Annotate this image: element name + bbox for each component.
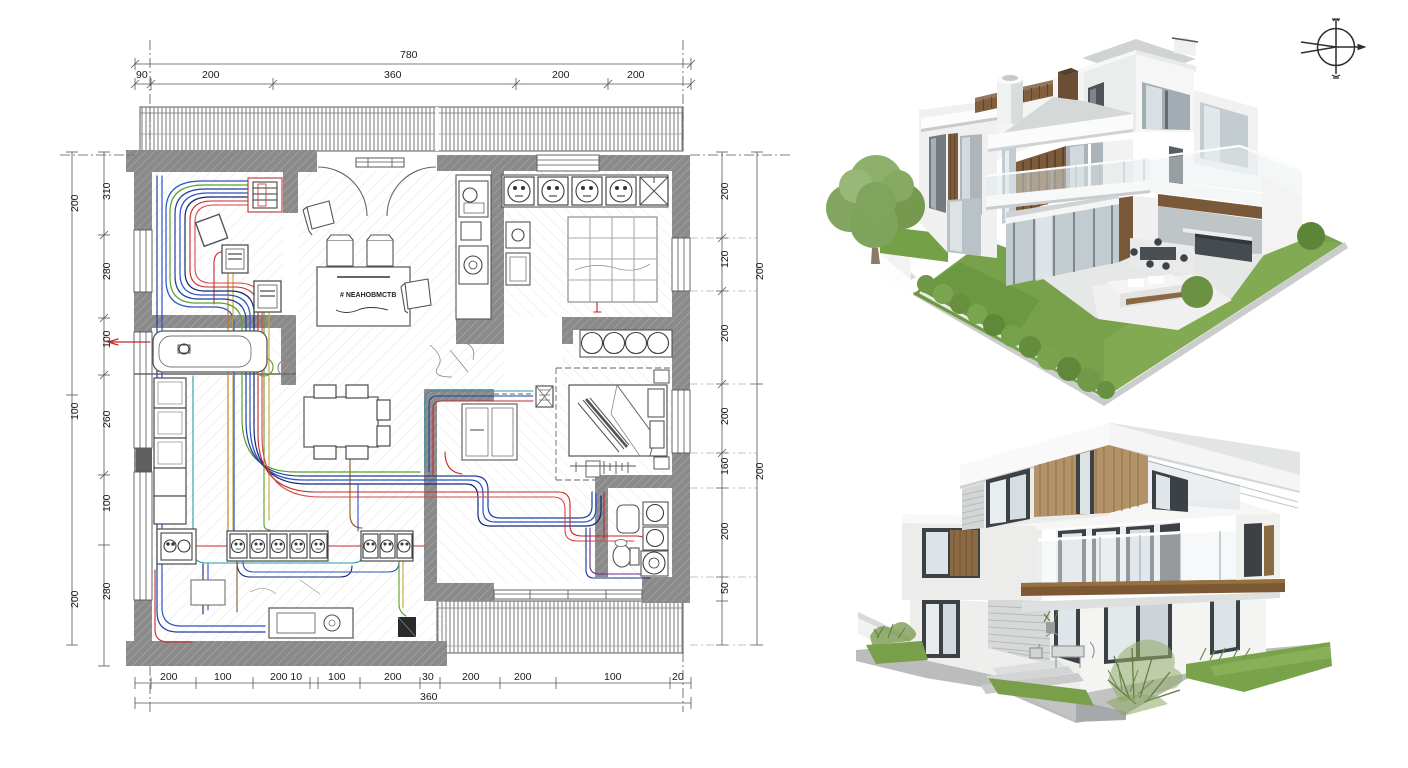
svg-text:30: 30 [422, 671, 434, 683]
svg-text:200: 200 [719, 407, 731, 425]
svg-text:260: 260 [101, 410, 113, 428]
svg-text:200: 200 [627, 69, 645, 81]
svg-text:310: 310 [101, 182, 113, 200]
svg-text:200: 200 [69, 194, 81, 212]
svg-text:200: 200 [719, 324, 731, 342]
svg-text:100: 100 [328, 671, 346, 683]
svg-text:90: 90 [136, 69, 148, 81]
svg-text:200 10: 200 10 [270, 671, 302, 683]
svg-text:200: 200 [160, 671, 178, 683]
svg-text:280: 280 [101, 582, 113, 600]
svg-text:20: 20 [672, 671, 684, 683]
svg-text:360: 360 [384, 69, 402, 81]
svg-text:# NEAHOBMCTB: # NEAHOBMCTB [340, 292, 396, 299]
svg-text:50: 50 [719, 582, 731, 594]
svg-text:100: 100 [214, 671, 232, 683]
svg-text:120: 120 [719, 250, 731, 268]
svg-text:100: 100 [69, 402, 81, 420]
svg-text:200: 200 [719, 522, 731, 540]
svg-text:200: 200 [514, 671, 532, 683]
svg-text:200: 200 [754, 462, 766, 480]
svg-text:100: 100 [101, 494, 113, 512]
svg-text:160: 160 [719, 457, 731, 475]
svg-text:780: 780 [400, 49, 418, 61]
svg-text:280: 280 [101, 262, 113, 280]
svg-text:200: 200 [552, 69, 570, 81]
svg-text:200: 200 [202, 69, 220, 81]
svg-text:200: 200 [384, 671, 402, 683]
svg-text:360: 360 [420, 691, 438, 703]
svg-text:200: 200 [462, 671, 480, 683]
svg-text:100: 100 [101, 330, 113, 348]
svg-text:200: 200 [754, 262, 766, 280]
svg-text:200: 200 [719, 182, 731, 200]
svg-text:100: 100 [604, 671, 622, 683]
svg-text:200: 200 [69, 590, 81, 608]
